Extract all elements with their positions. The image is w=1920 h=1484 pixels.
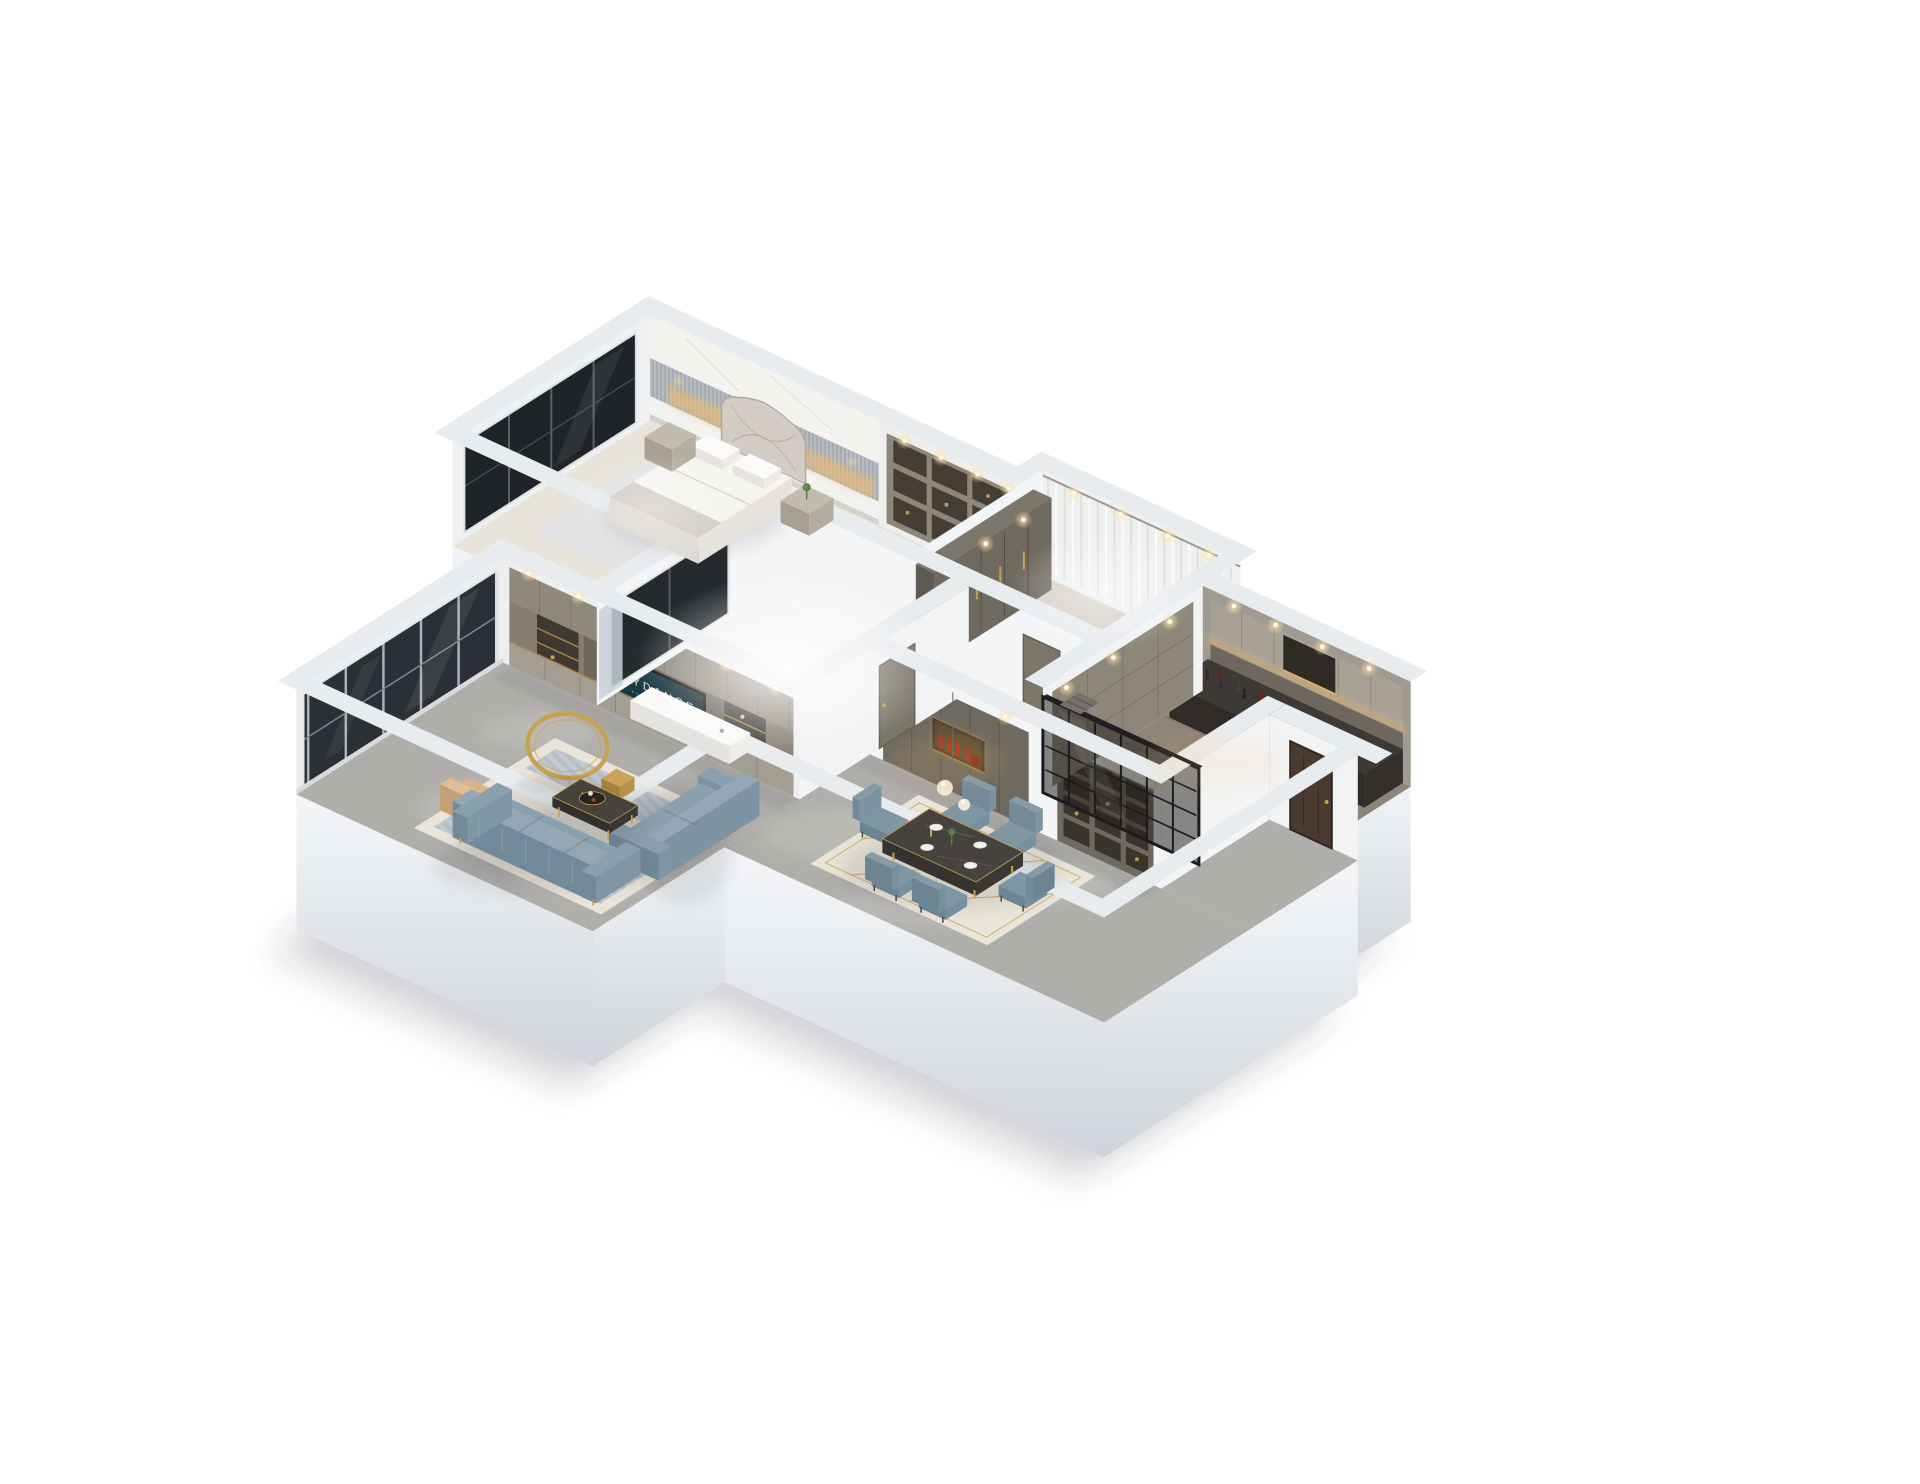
overexposed-daylight [566, 451, 746, 561]
dining-wall-glow [886, 738, 1006, 786]
downlight [1111, 655, 1116, 660]
pendant-highlight [961, 800, 965, 804]
downlight [1118, 512, 1123, 517]
door-handle [1325, 800, 1329, 804]
coffee-pot [588, 791, 593, 796]
closet-item [905, 511, 909, 515]
downlight [1207, 553, 1212, 558]
render-canvas: SKYDANCEPRODUCTIONS [0, 0, 1920, 1484]
downlight [527, 571, 532, 576]
shelf-item [1075, 812, 1079, 816]
downlight [1367, 666, 1372, 671]
bedside-plant-leaf [803, 484, 808, 489]
closet-item [986, 494, 990, 498]
downlight [1003, 714, 1008, 719]
coffee-pot [592, 798, 596, 802]
closet-item [944, 503, 948, 507]
dining-chair-back-side [989, 787, 996, 812]
plate [921, 844, 934, 850]
downlight [1232, 604, 1237, 609]
downlight [1064, 685, 1069, 690]
plate [974, 842, 987, 848]
downlight [1320, 644, 1325, 649]
downlight [1072, 490, 1077, 495]
wall-sconce [676, 378, 682, 384]
downlight [1273, 623, 1278, 628]
shelf-item [551, 655, 555, 659]
downlight [983, 541, 988, 546]
downlight [1021, 517, 1026, 522]
dining-chair-back-front [853, 797, 860, 821]
plate [964, 862, 977, 868]
shelf-item [1135, 857, 1139, 861]
dining-chair-back-front [1026, 875, 1033, 901]
overexposed-daylight [1009, 530, 1199, 650]
wall-sconce [850, 459, 856, 465]
pendant-globe [958, 799, 970, 811]
downlight [902, 438, 907, 443]
downlight [975, 472, 980, 477]
table-centerpiece [948, 828, 955, 835]
downlight [576, 594, 581, 599]
floor-plan-3d-render: SKYDANCEPRODUCTIONS [0, 0, 1920, 1484]
dining-chair-back-side [892, 864, 899, 891]
downlight [1006, 486, 1011, 491]
overexposed-daylight [635, 575, 935, 759]
plate [930, 824, 943, 830]
dining-chair-back-side [939, 886, 946, 913]
kitchen-floor-glow [1144, 737, 1284, 789]
downlight [939, 455, 944, 460]
downlight [1165, 534, 1170, 539]
dining-chair-back-side [1036, 809, 1043, 834]
